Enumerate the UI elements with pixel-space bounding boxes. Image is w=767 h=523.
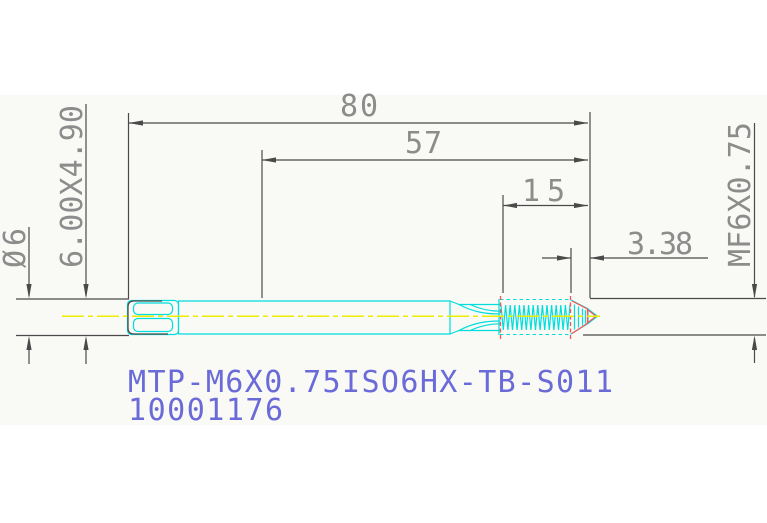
dim-label-square-end: 6.00X4.90	[55, 105, 90, 268]
dim-label-functional-length: 57	[405, 126, 442, 161]
dim-label-chamfer-length: 3.38	[627, 227, 693, 262]
part-number-text: 10001176	[128, 393, 283, 428]
cad-drawing-canvas: 80 57 15 3.38 Ø6 6.00X4.90 MF6X0.75 MTP-…	[0, 0, 767, 523]
dim-label-thread-spec: MF6X0.75	[723, 122, 758, 267]
dim-label-overall-length: 80	[340, 89, 378, 124]
cad-drawing-window: 80 57 15 3.38 Ø6 6.00X4.90 MF6X0.75 MTP-…	[0, 0, 767, 523]
